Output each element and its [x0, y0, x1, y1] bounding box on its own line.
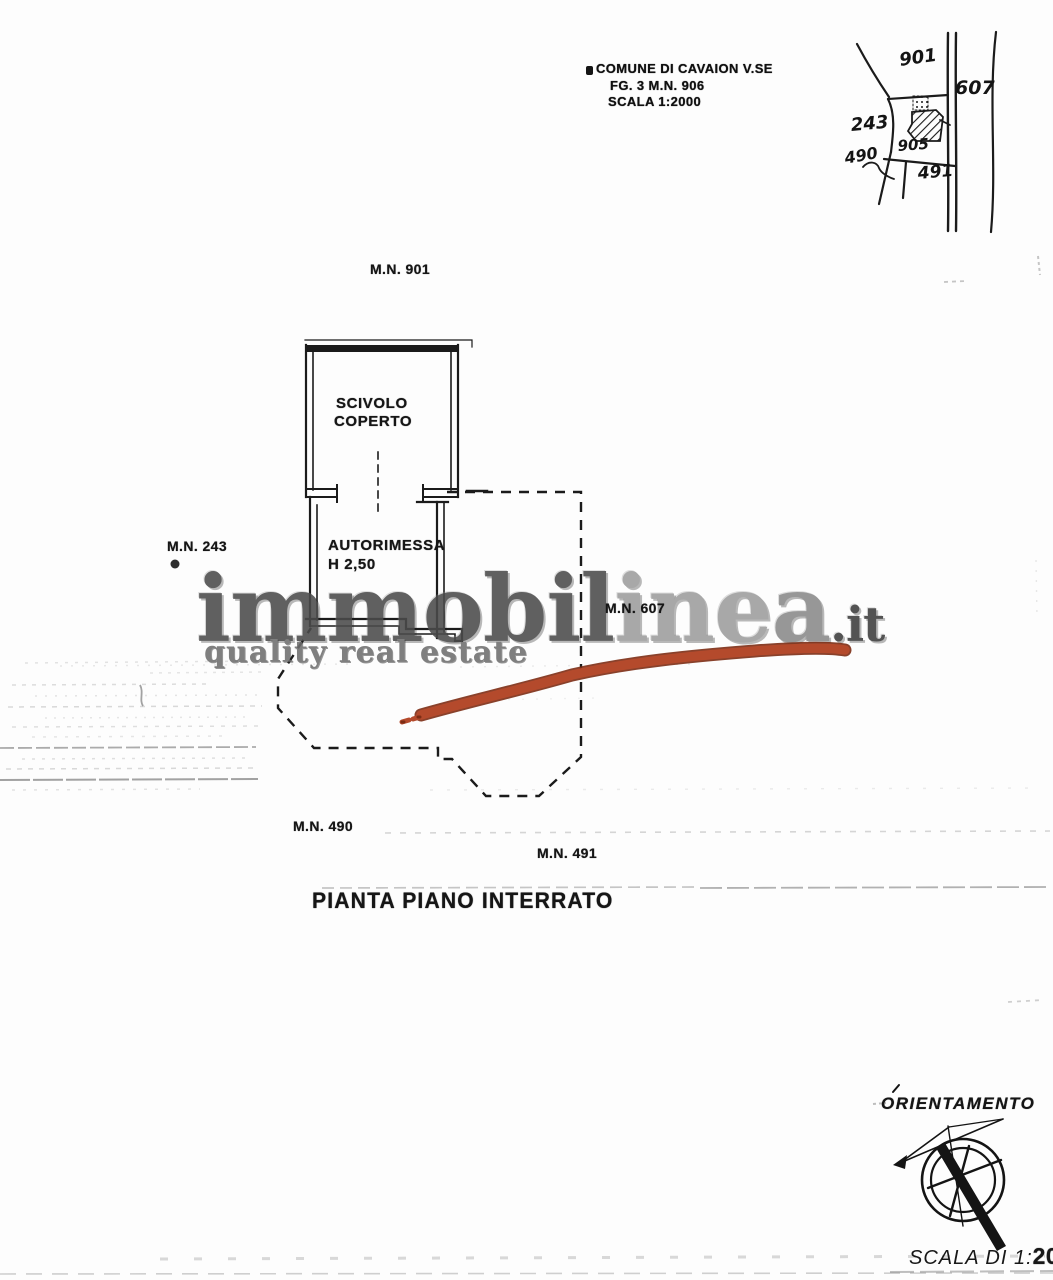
- roof-outline: [305, 340, 472, 347]
- room-scivolo-label-line1: SCIVOLO: [336, 395, 408, 412]
- parcel-number-243: 243: [850, 112, 889, 136]
- parcel-number-607: 607: [955, 77, 995, 99]
- scan-noise: [0, 256, 1053, 1274]
- parcel-number-905: 905: [897, 135, 929, 155]
- map-number-243-label: M.N. 243: [167, 538, 227, 554]
- watermark: immobilinea.it quality real estate: [196, 563, 884, 668]
- watermark-tld: .it: [830, 597, 884, 653]
- header-map-scale: SCALA 1:2000: [608, 94, 701, 109]
- watermark-brand-mid: a: [772, 555, 831, 663]
- parcel-number-490: 490: [843, 143, 879, 168]
- road-edge-line: [991, 32, 996, 232]
- plan-title: PIANTA PIANO INTERRATO: [312, 888, 613, 914]
- room-autorimessa-label: AUTORIMESSA: [328, 537, 445, 554]
- scale-note-value: 200: [1033, 1243, 1053, 1269]
- map-number-901-label: M.N. 901: [370, 261, 430, 277]
- scale-note-prefix: SCALA DI 1:: [909, 1247, 1033, 1269]
- stamp-mark: [586, 66, 593, 75]
- header-sheet-parcel: FG. 3 M.N. 906: [610, 78, 704, 93]
- annex-footprint: [913, 96, 928, 110]
- compass-needle: [936, 1143, 1006, 1251]
- scale-note: SCALA DI 1:200: [909, 1243, 1053, 1270]
- north-arrowhead: [893, 1155, 907, 1169]
- parcel-number-491: 491: [917, 161, 954, 184]
- header-municipality: COMUNE DI CAVAION V.SE: [596, 61, 773, 76]
- orientation-label: ORIENTAMENTO: [881, 1094, 1035, 1114]
- scanned-floor-plan-page: COMUNE DI CAVAION V.SE FG. 3 M.N. 906 SC…: [0, 0, 1053, 1280]
- map-number-490-label: M.N. 490: [293, 818, 353, 834]
- room-autorimessa-height: H 2,50: [328, 556, 376, 573]
- map-number-491-label: M.N. 491: [537, 845, 597, 861]
- room-scivolo-label-line2: COPERTO: [334, 413, 412, 430]
- map-number-607-label: M.N. 607: [605, 600, 665, 616]
- ink-dot: [171, 560, 180, 569]
- parcel-number-901: 901: [898, 45, 938, 71]
